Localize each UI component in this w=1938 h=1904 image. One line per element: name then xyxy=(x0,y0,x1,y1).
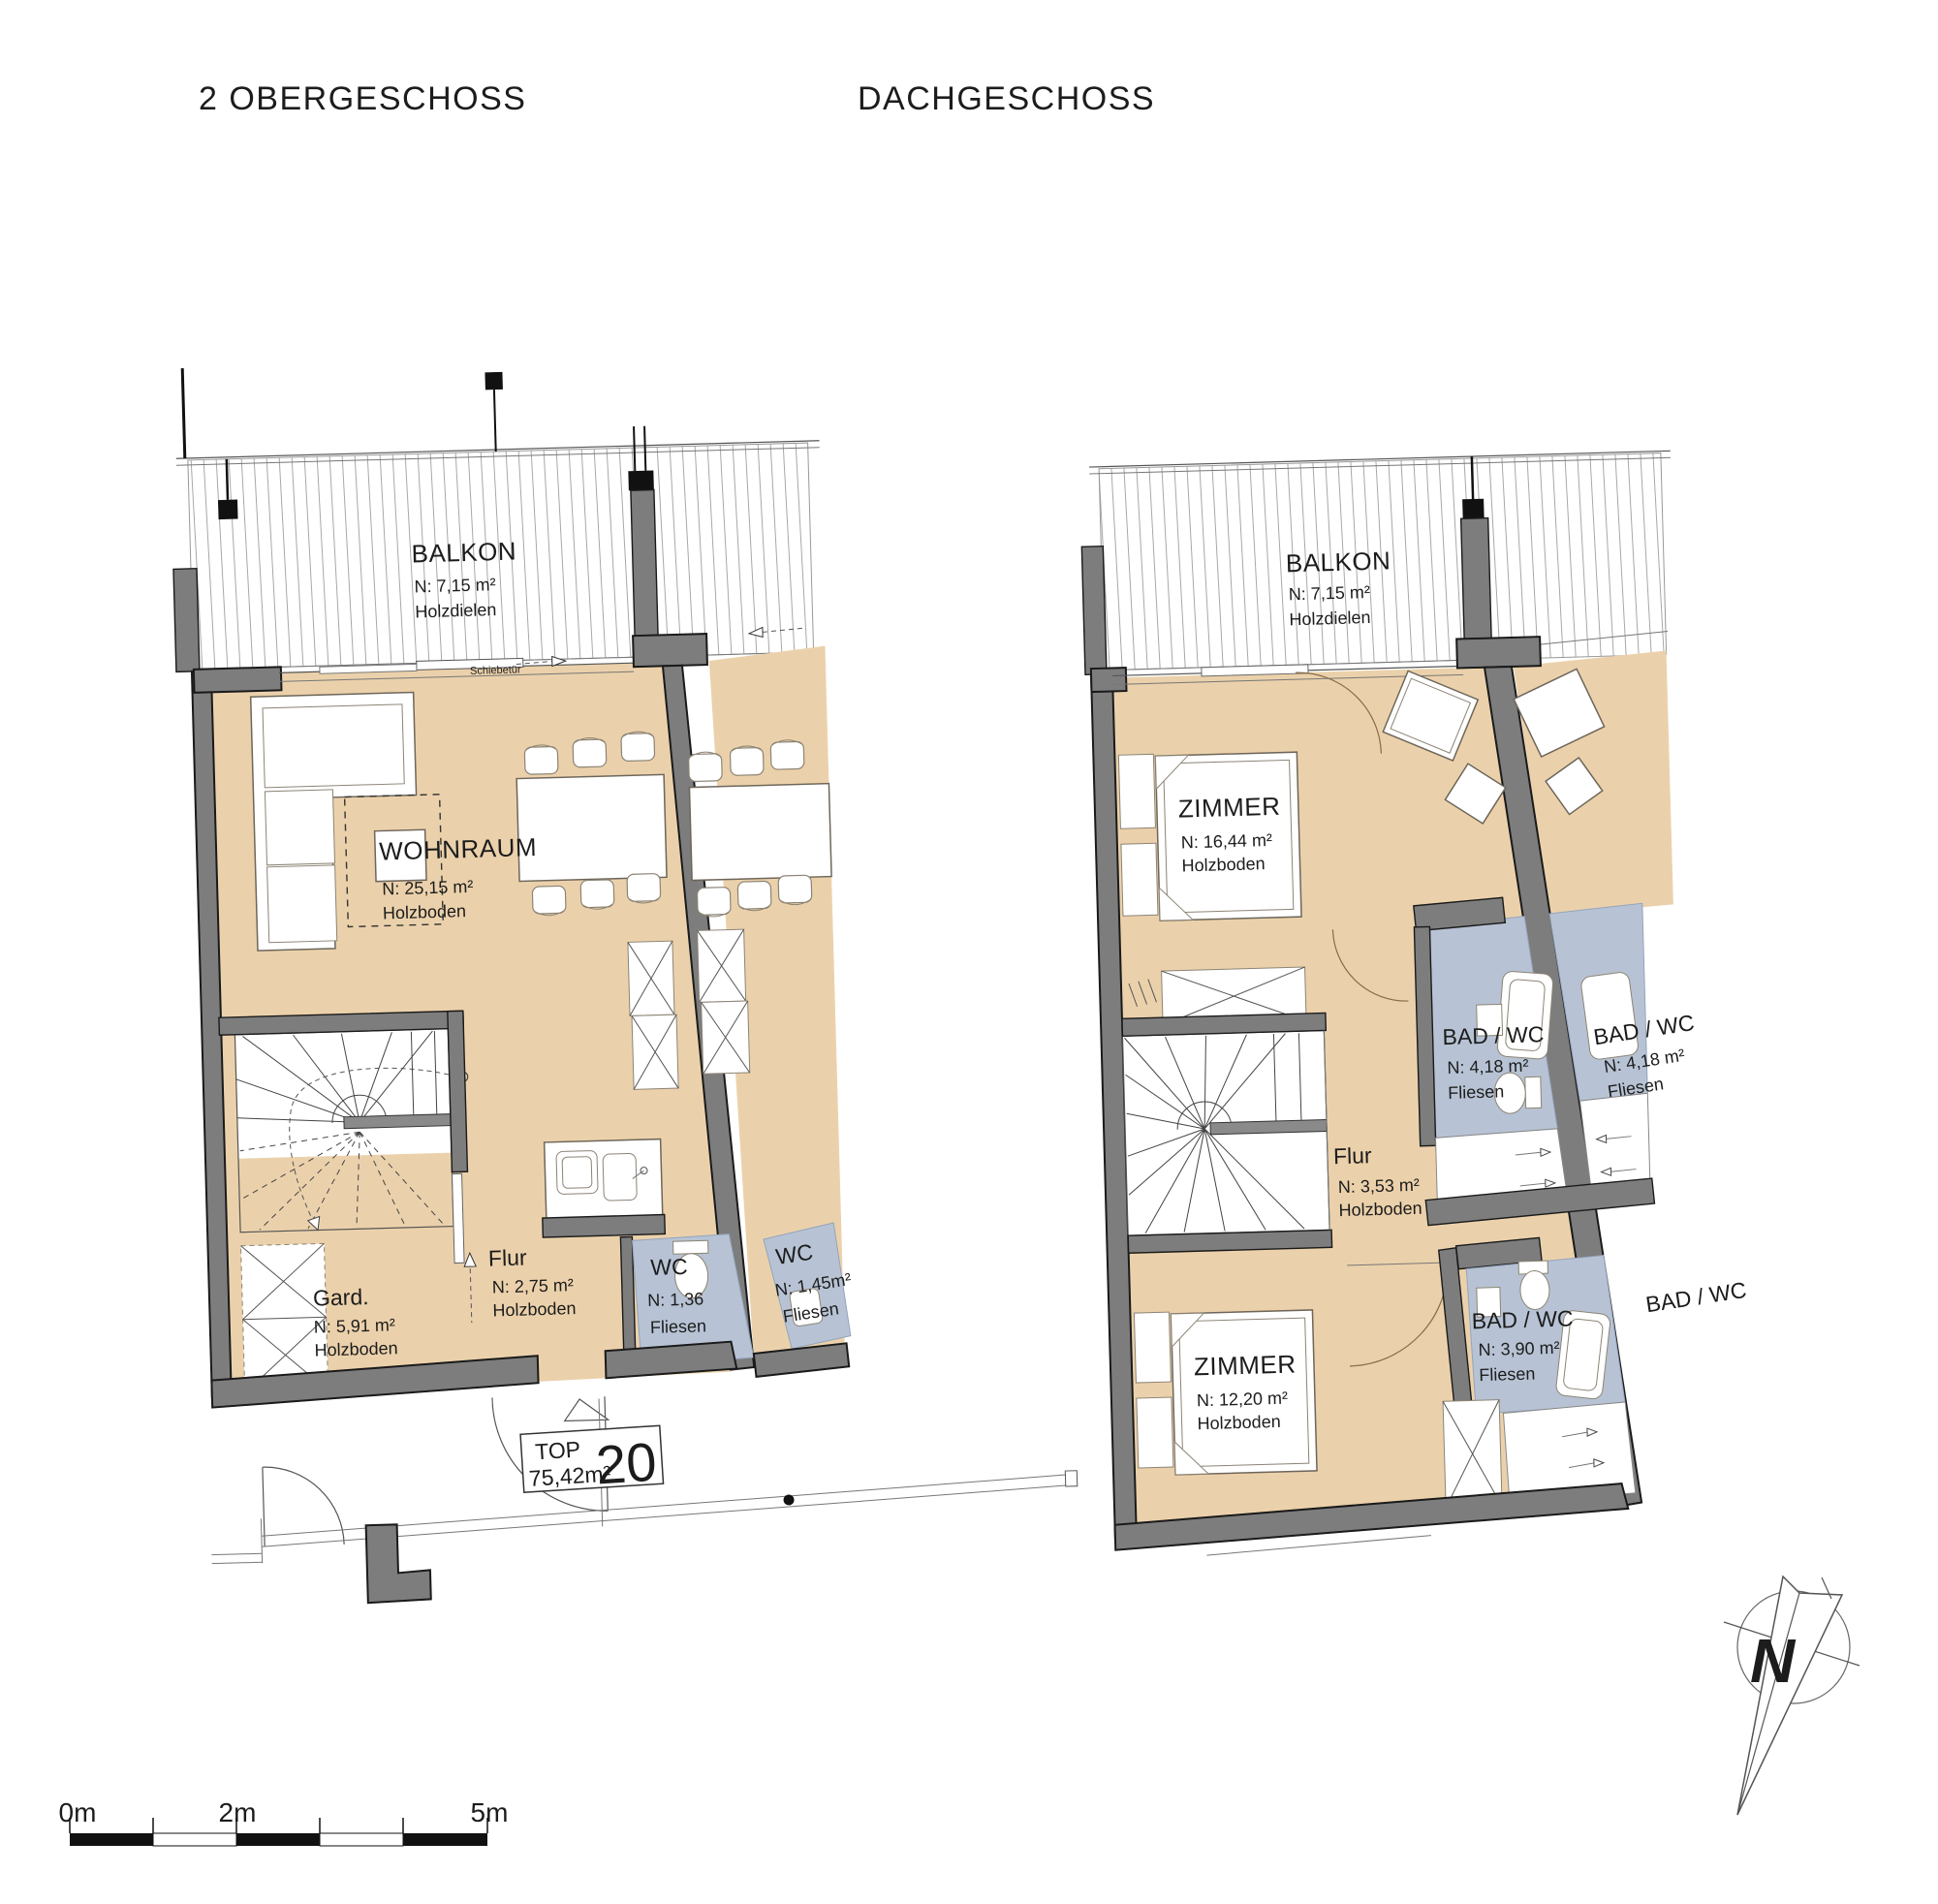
svg-text:Holzboden: Holzboden xyxy=(1181,854,1266,875)
cabinet-lower xyxy=(1443,1400,1502,1509)
kitchen-counter-sink xyxy=(545,1139,663,1224)
svg-text:N: 25,15 m²: N: 25,15 m² xyxy=(382,877,474,899)
svg-text:N: 7,15 m²: N: 7,15 m² xyxy=(1288,582,1370,604)
svg-text:ZIMMER: ZIMMER xyxy=(1194,1349,1297,1381)
svg-text:N: 1,36: N: 1,36 xyxy=(647,1289,704,1310)
entrance-and-corridor xyxy=(207,1382,1079,1607)
svg-text:BAD / WC: BAD / WC xyxy=(1442,1021,1544,1049)
room-label-bad-bottom-neighbor: BAD / WC xyxy=(1644,1277,1748,1317)
svg-text:N: 2,75 m²: N: 2,75 m² xyxy=(492,1275,575,1296)
svg-text:Fliesen: Fliesen xyxy=(1479,1364,1536,1386)
svg-text:Flur: Flur xyxy=(488,1244,528,1270)
svg-text:WC: WC xyxy=(650,1254,688,1280)
svg-text:Holzboden: Holzboden xyxy=(383,901,467,922)
room-floor: Holzdielen xyxy=(415,600,497,621)
svg-text:Holzboden: Holzboden xyxy=(492,1298,577,1320)
svg-text:Flur: Flur xyxy=(1333,1142,1373,1169)
svg-text:N: 3,53 m²: N: 3,53 m² xyxy=(1338,1175,1421,1197)
svg-text:Holzboden: Holzboden xyxy=(1197,1412,1281,1433)
scale-label-0m: 0m xyxy=(59,1797,97,1827)
room-name: BALKON xyxy=(411,536,516,568)
svg-text:N: 12,20 m²: N: 12,20 m² xyxy=(1197,1389,1289,1411)
svg-text:ZIMMER: ZIMMER xyxy=(1177,792,1280,824)
title-obergeschoss: 2 OBERGESCHOSS xyxy=(199,80,526,117)
svg-text:Schiebetür: Schiebetür xyxy=(470,664,521,676)
svg-text:TOP: TOP xyxy=(534,1437,580,1465)
svg-text:N: 3,90 m²: N: 3,90 m² xyxy=(1478,1338,1560,1359)
svg-text:Gard.: Gard. xyxy=(313,1284,369,1311)
svg-text:Holzdielen: Holzdielen xyxy=(1289,608,1371,629)
floor-plan-sheet: 2 OBERGESCHOSS DACHGESCHOSS BALKON N: 7,… xyxy=(0,0,1938,1904)
balcony-left xyxy=(168,351,825,672)
svg-text:WOHNRAUM: WOHNRAUM xyxy=(379,832,538,866)
dining-set xyxy=(516,731,668,916)
floor-plan-obergeschoss: BALKON N: 7,15 m² Holzdielen Schiebetür xyxy=(168,344,1079,1607)
svg-text:Fliesen: Fliesen xyxy=(650,1316,707,1337)
room-area: N: 7,15 m² xyxy=(414,575,496,596)
north-arrow-icon: N xyxy=(1724,1576,1860,1815)
wall-wc xyxy=(543,1214,666,1237)
svg-text:Fliesen: Fliesen xyxy=(1448,1081,1505,1103)
scale-label-5m: 5m xyxy=(471,1797,509,1827)
svg-text:N: 4,18 m²: N: 4,18 m² xyxy=(1447,1056,1529,1077)
svg-text:Holzboden: Holzboden xyxy=(314,1338,398,1359)
svg-text:BALKON: BALKON xyxy=(1285,546,1391,577)
stairs-right-plan xyxy=(1122,1031,1329,1236)
title-dachgeschoss: DACHGESCHOSS xyxy=(858,80,1155,117)
floor-plan-dachgeschoss: BALKON N: 7,15 m² Holzdielen xyxy=(1079,450,1755,1558)
svg-text:BAD / WC: BAD / WC xyxy=(1471,1305,1573,1333)
scale-bar: 0m 2m 5m xyxy=(59,1797,509,1846)
svg-text:N: 16,44 m²: N: 16,44 m² xyxy=(1181,830,1273,853)
svg-text:Holzboden: Holzboden xyxy=(1338,1199,1422,1220)
top-badge: TOP 75,42m² 20 xyxy=(520,1425,664,1500)
svg-text:N: 5,91 m²: N: 5,91 m² xyxy=(314,1315,396,1336)
svg-text:20: 20 xyxy=(594,1431,658,1496)
scale-label-2m: 2m xyxy=(219,1797,257,1827)
north-label: N xyxy=(1750,1626,1797,1696)
